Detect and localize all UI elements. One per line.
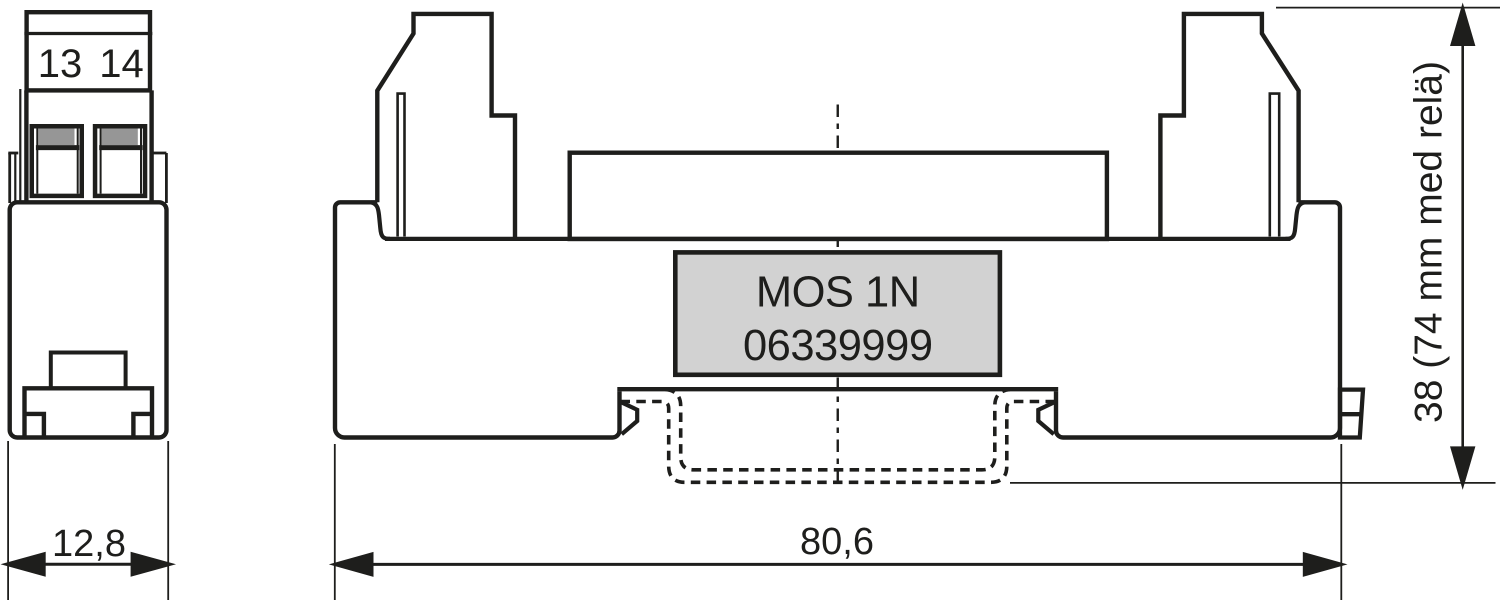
- svg-text:MOS 1N: MOS 1N: [756, 269, 920, 317]
- svg-text:12,8: 12,8: [52, 523, 126, 565]
- svg-text:80,6: 80,6: [800, 521, 874, 563]
- svg-text:06339999: 06339999: [743, 322, 933, 370]
- svg-text:38 (74 mm med relä): 38 (74 mm med relä): [1408, 61, 1451, 423]
- svg-text:13: 13: [38, 42, 83, 86]
- svg-text:14: 14: [99, 42, 144, 86]
